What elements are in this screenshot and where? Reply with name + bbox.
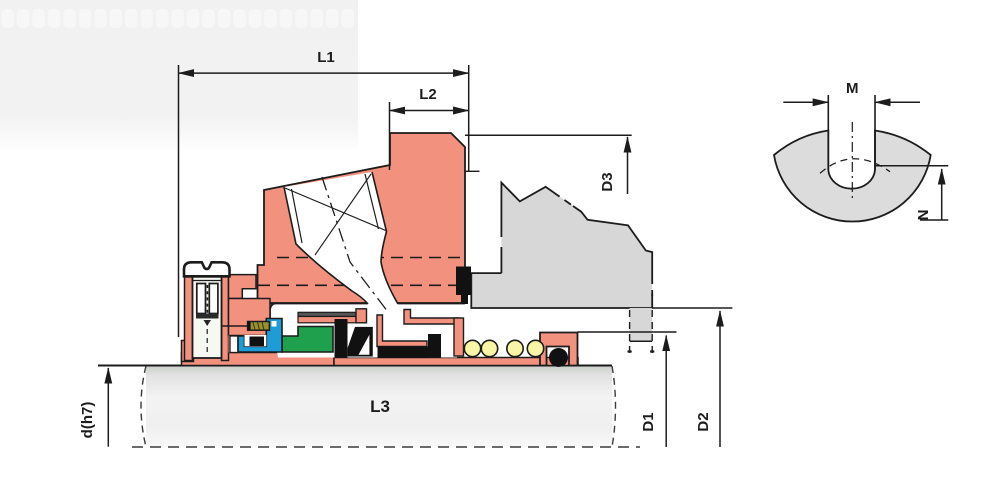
- svg-text:L3: L3: [370, 397, 390, 416]
- svg-text:D3: D3: [599, 172, 616, 191]
- svg-text:D2: D2: [695, 412, 712, 431]
- svg-text:M: M: [846, 80, 859, 97]
- svg-text:D1: D1: [640, 412, 657, 431]
- svg-text:L1: L1: [317, 49, 335, 66]
- svg-text:d(h7): d(h7): [79, 402, 96, 439]
- svg-text:N: N: [915, 210, 932, 221]
- svg-text:L2: L2: [419, 86, 437, 103]
